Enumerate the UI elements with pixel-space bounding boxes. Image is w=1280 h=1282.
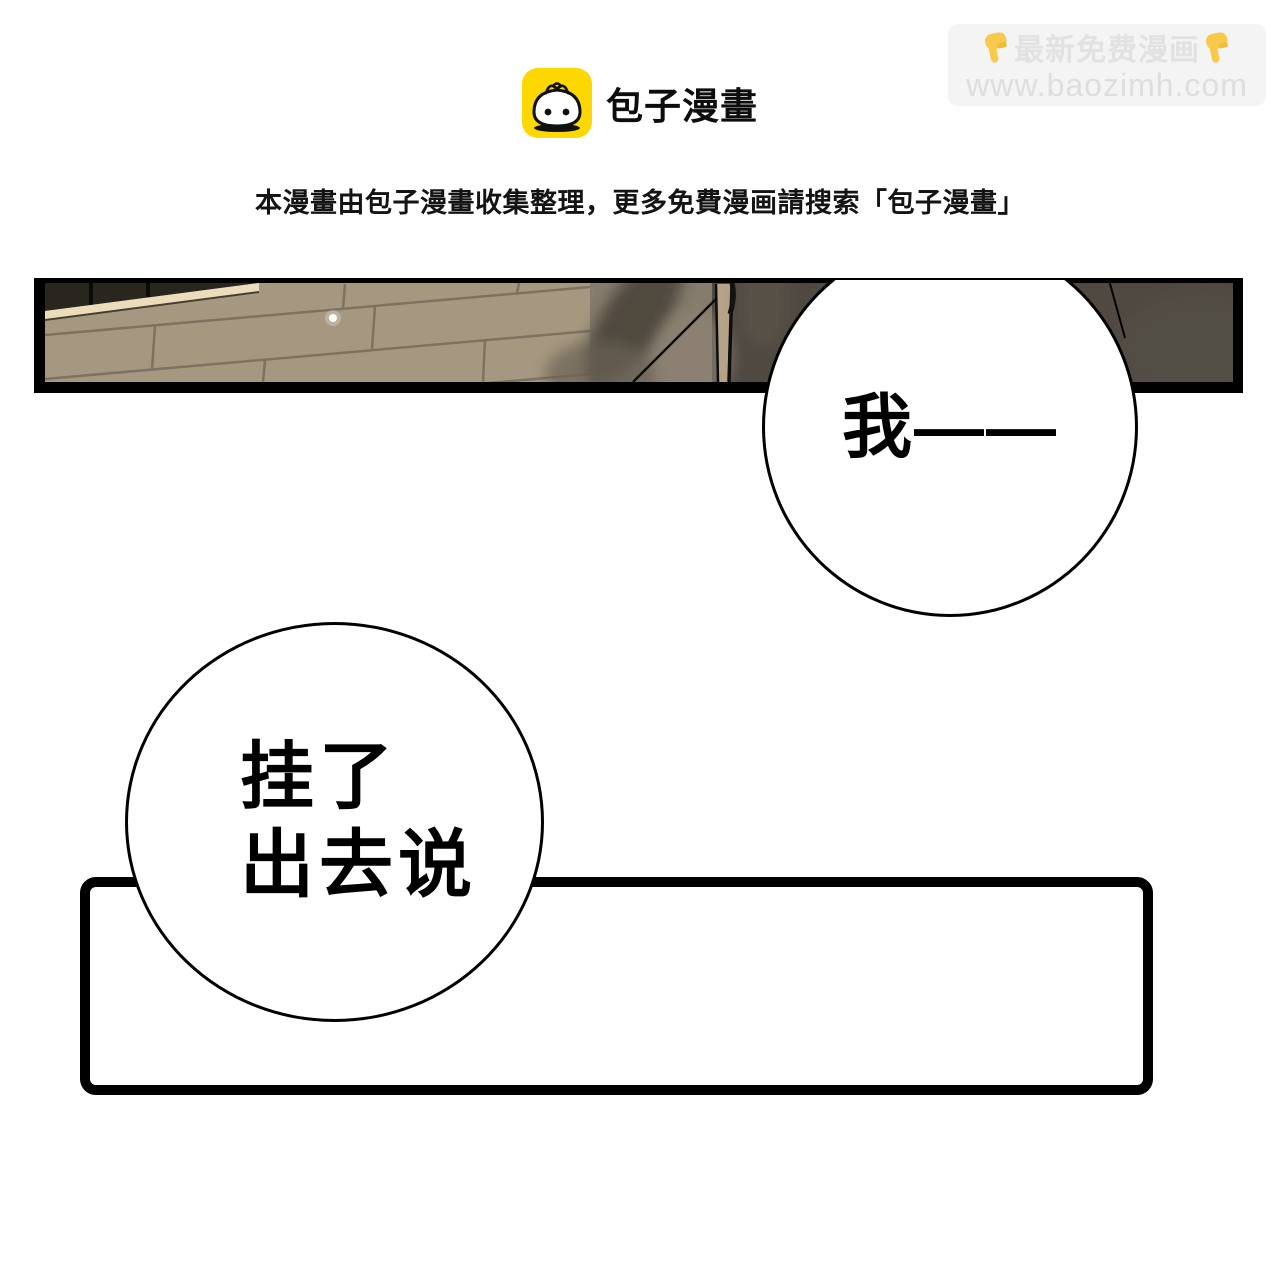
- baozi-bun-face-icon: [522, 68, 592, 138]
- speech-bubble-bottom: 挂了 出去说: [125, 622, 544, 1022]
- watermark-title: 最新免费漫画: [1014, 25, 1200, 69]
- speech-bubble-bottom-text: 挂了 出去说: [240, 733, 477, 909]
- pointing-down-hand-icon: [1204, 31, 1231, 63]
- speech-bubble-top-clip: 我——: [0, 280, 1280, 620]
- brand-name: 包子漫畫: [606, 76, 758, 130]
- pointing-down-hand-icon: [983, 31, 1010, 63]
- collection-notice: 本漫畫由包子漫畫收集整理，更多免費漫画請搜索「包子漫畫」: [0, 181, 1280, 220]
- speech-bubble-line: 出去说: [240, 821, 477, 909]
- speech-bubble-line: 挂了: [240, 733, 477, 821]
- brand-header: 包子漫畫: [0, 68, 1280, 138]
- watermark-title-row: 最新免费漫画: [983, 27, 1231, 67]
- speech-bubble-top-text: 我——: [842, 371, 1058, 472]
- baozi-logo: [522, 68, 592, 138]
- speech-bubble-top: 我——: [762, 280, 1138, 617]
